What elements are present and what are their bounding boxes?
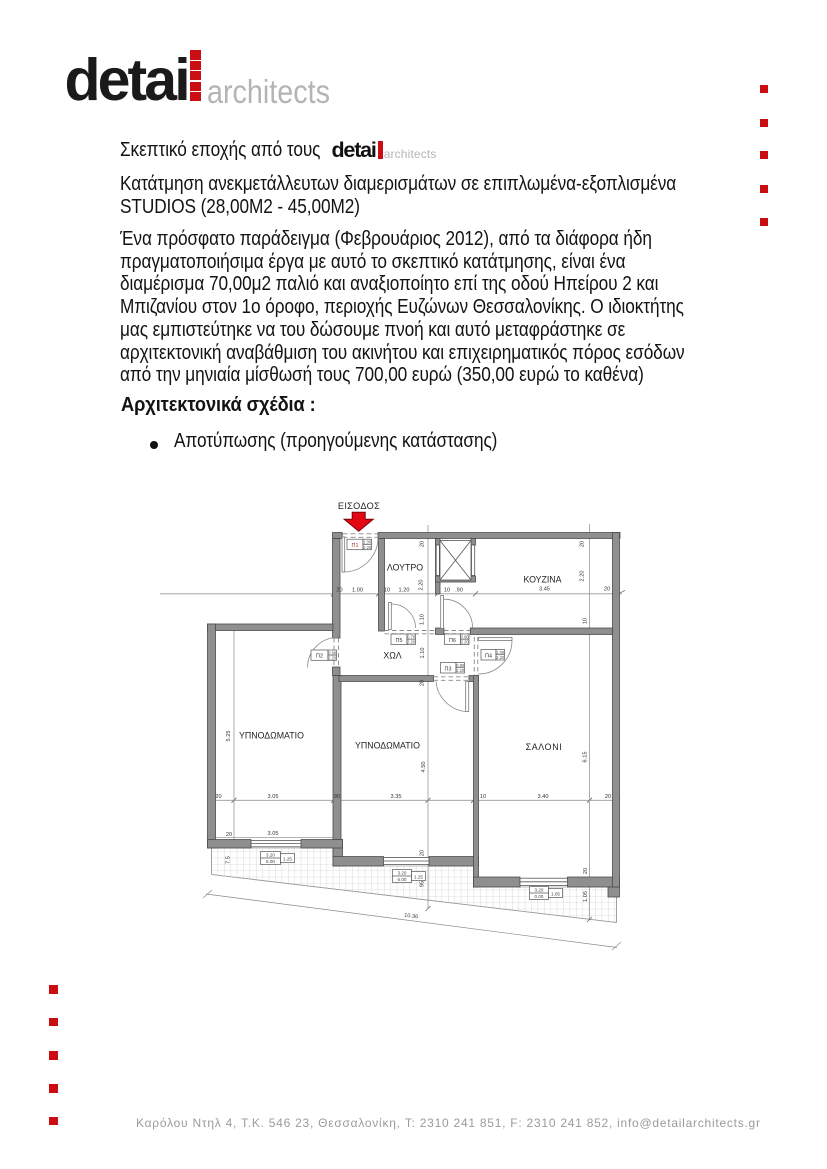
svg-text:ΕΙΣΟΔΟΣ: ΕΙΣΟΔΟΣ: [338, 501, 380, 511]
svg-text:4.50: 4.50: [421, 762, 427, 773]
svg-text:3.40: 3.40: [538, 794, 549, 800]
svg-text:10.36: 10.36: [404, 913, 419, 921]
svg-text:Π4: Π4: [485, 653, 492, 659]
svg-text:20: 20: [420, 850, 426, 856]
svg-text:Π1: Π1: [352, 543, 359, 549]
svg-text:Π3: Π3: [445, 666, 452, 672]
svg-text:20: 20: [583, 868, 589, 874]
svg-text:Π2: Π2: [316, 654, 323, 660]
svg-text:7.5: 7.5: [226, 856, 232, 864]
svg-text:20: 20: [336, 587, 342, 593]
svg-text:2.20: 2.20: [580, 571, 586, 582]
svg-text:1.20: 1.20: [399, 587, 410, 593]
svg-text:ΚΟΥΖΙΝΑ: ΚΟΥΖΙΝΑ: [523, 575, 561, 585]
svg-text:ΛΟΥΤΡΟ: ΛΟΥΤΡΟ: [387, 563, 423, 573]
svg-text:6.15: 6.15: [583, 752, 589, 763]
svg-text:5.25: 5.25: [226, 731, 232, 742]
svg-text:1.25: 1.25: [283, 857, 292, 862]
svg-text:3.05: 3.05: [268, 794, 279, 800]
svg-text:10: 10: [480, 794, 486, 800]
svg-text:1.25: 1.25: [414, 875, 423, 880]
svg-text:ΣΑΛΟΝΙ: ΣΑΛΟΝΙ: [526, 742, 563, 752]
svg-text:2.20: 2.20: [461, 640, 470, 645]
svg-text:2.20: 2.20: [456, 668, 465, 673]
svg-text:3.45: 3.45: [539, 587, 550, 593]
svg-text:90: 90: [334, 794, 340, 800]
svg-text:ΧΩΛ: ΧΩΛ: [383, 651, 401, 661]
svg-text:20: 20: [580, 541, 586, 547]
svg-text:10: 10: [384, 587, 390, 593]
svg-text:3.05: 3.05: [268, 831, 279, 837]
svg-text:2.20: 2.20: [407, 640, 416, 645]
svg-text:ΥΠΝΟΔΩΜΑΤΙΟ: ΥΠΝΟΔΩΜΑΤΙΟ: [239, 731, 304, 741]
svg-text:1.00: 1.00: [352, 587, 363, 593]
svg-text:20: 20: [420, 680, 426, 686]
svg-text:Π5: Π5: [396, 638, 403, 644]
svg-text:20: 20: [420, 541, 426, 547]
svg-text:20: 20: [215, 794, 221, 800]
svg-text:3.20: 3.20: [535, 888, 544, 893]
svg-text:3.20: 3.20: [266, 853, 275, 858]
svg-text:20: 20: [604, 587, 610, 593]
svg-text:20: 20: [226, 832, 232, 838]
svg-text:0.00: 0.00: [535, 894, 544, 899]
svg-text:10: 10: [444, 587, 450, 593]
svg-text:6.00: 6.00: [266, 859, 275, 864]
svg-text:Π6: Π6: [449, 638, 456, 644]
svg-text:.90: .90: [455, 587, 463, 593]
svg-text:20: 20: [605, 794, 611, 800]
svg-text:6.00: 6.00: [398, 877, 407, 882]
svg-text:1.10: 1.10: [420, 648, 426, 659]
svg-text:3.20: 3.20: [398, 871, 407, 876]
svg-text:3.35: 3.35: [391, 794, 402, 800]
svg-text:1.05: 1.05: [583, 891, 589, 902]
svg-text:ΥΠΝΟΔΩΜΑΤΙΟ: ΥΠΝΟΔΩΜΑΤΙΟ: [355, 741, 420, 751]
svg-text:2.20: 2.20: [363, 545, 372, 550]
svg-text:10: 10: [583, 618, 589, 624]
svg-text:1.05: 1.05: [551, 892, 560, 897]
svg-text:2.20: 2.20: [328, 656, 337, 661]
svg-text:1.10: 1.10: [420, 614, 426, 625]
svg-text:95: 95: [420, 881, 426, 887]
svg-text:2.20: 2.20: [496, 655, 505, 660]
svg-text:2.20: 2.20: [419, 580, 425, 591]
